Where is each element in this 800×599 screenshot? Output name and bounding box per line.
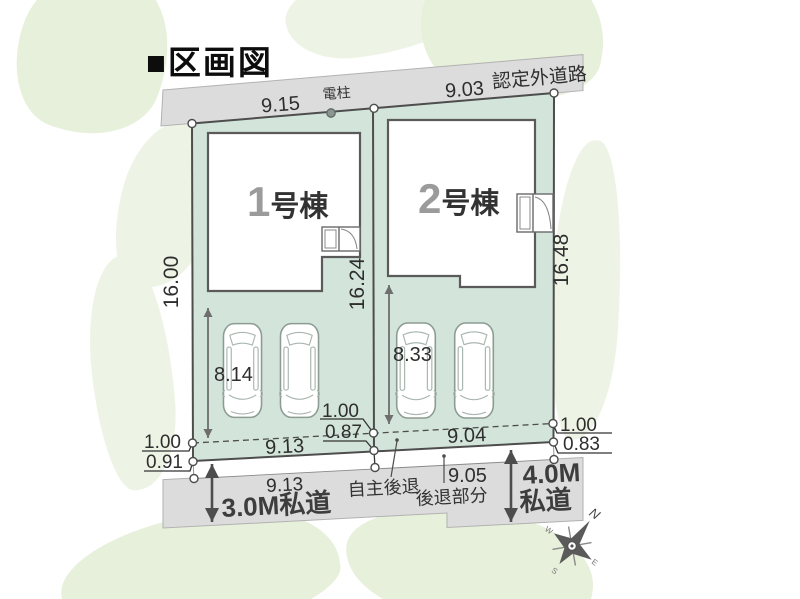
compass-south-label: S [550,566,560,576]
leader-dot [395,438,399,442]
boundary-left [192,124,193,462]
boundary-point [550,438,558,446]
dim-depth-right: 16.48 [550,234,573,287]
boundary-point [370,429,378,437]
compass-north-label: N [587,505,604,523]
compass-east-label: E [590,557,600,567]
setback-part-label: 後退部分 [415,485,488,509]
dim-offset-left-top: 1.00 [144,432,181,453]
boundary-point [550,456,558,464]
boundary-point [550,89,558,97]
dim-parking-2: 8.33 [393,344,432,366]
utility-pole-label: 電柱 [322,84,351,102]
boundary-point [371,464,379,472]
dim-frontage-2: 9.04 [447,424,487,448]
dim-frontage-1: 9.13 [265,435,305,459]
boundary-point [549,420,557,428]
car-icon [452,323,496,418]
boundary-point [370,447,378,455]
page-title: ■区画図 [146,36,273,84]
compass-west-label: W [543,524,555,536]
plot-plan: 1号棟 2号棟 8.14 8.33 9.15 9.03 電柱 認定外道路 [0,0,800,599]
road-left-name: 3.0M私道 [221,487,332,523]
dim-offset-right-bottom: 0.83 [563,434,600,455]
car-icon [278,324,321,418]
building-2-entrance [517,194,553,232]
boundary-point [190,475,198,483]
boundary-point [189,439,197,447]
utility-pole-icon [327,109,335,117]
setback-note: 自主後退 [347,476,420,500]
dim-depth-left: 16.00 [160,256,183,309]
boundary-point [370,104,378,112]
building-1-entrance [322,227,360,251]
dim-offset-left-bottom: 0.91 [146,452,183,473]
dim-depth-middle: 16.24 [346,257,369,310]
boundary-point [189,458,197,466]
boundary-divider [373,108,374,450]
dim-parking-1: 8.14 [214,364,253,386]
dim-offset-mid-bottom: 0.87 [325,422,362,443]
dim-setback-length: 9.05 [448,465,487,487]
dim-top-width-2: 9.03 [444,78,485,103]
road-right-name-2: 私道 [519,484,573,517]
boundary-point [188,120,196,128]
dim-top-width-1: 9.15 [260,93,301,118]
leader-dot [442,454,446,458]
car-icon [394,323,438,418]
